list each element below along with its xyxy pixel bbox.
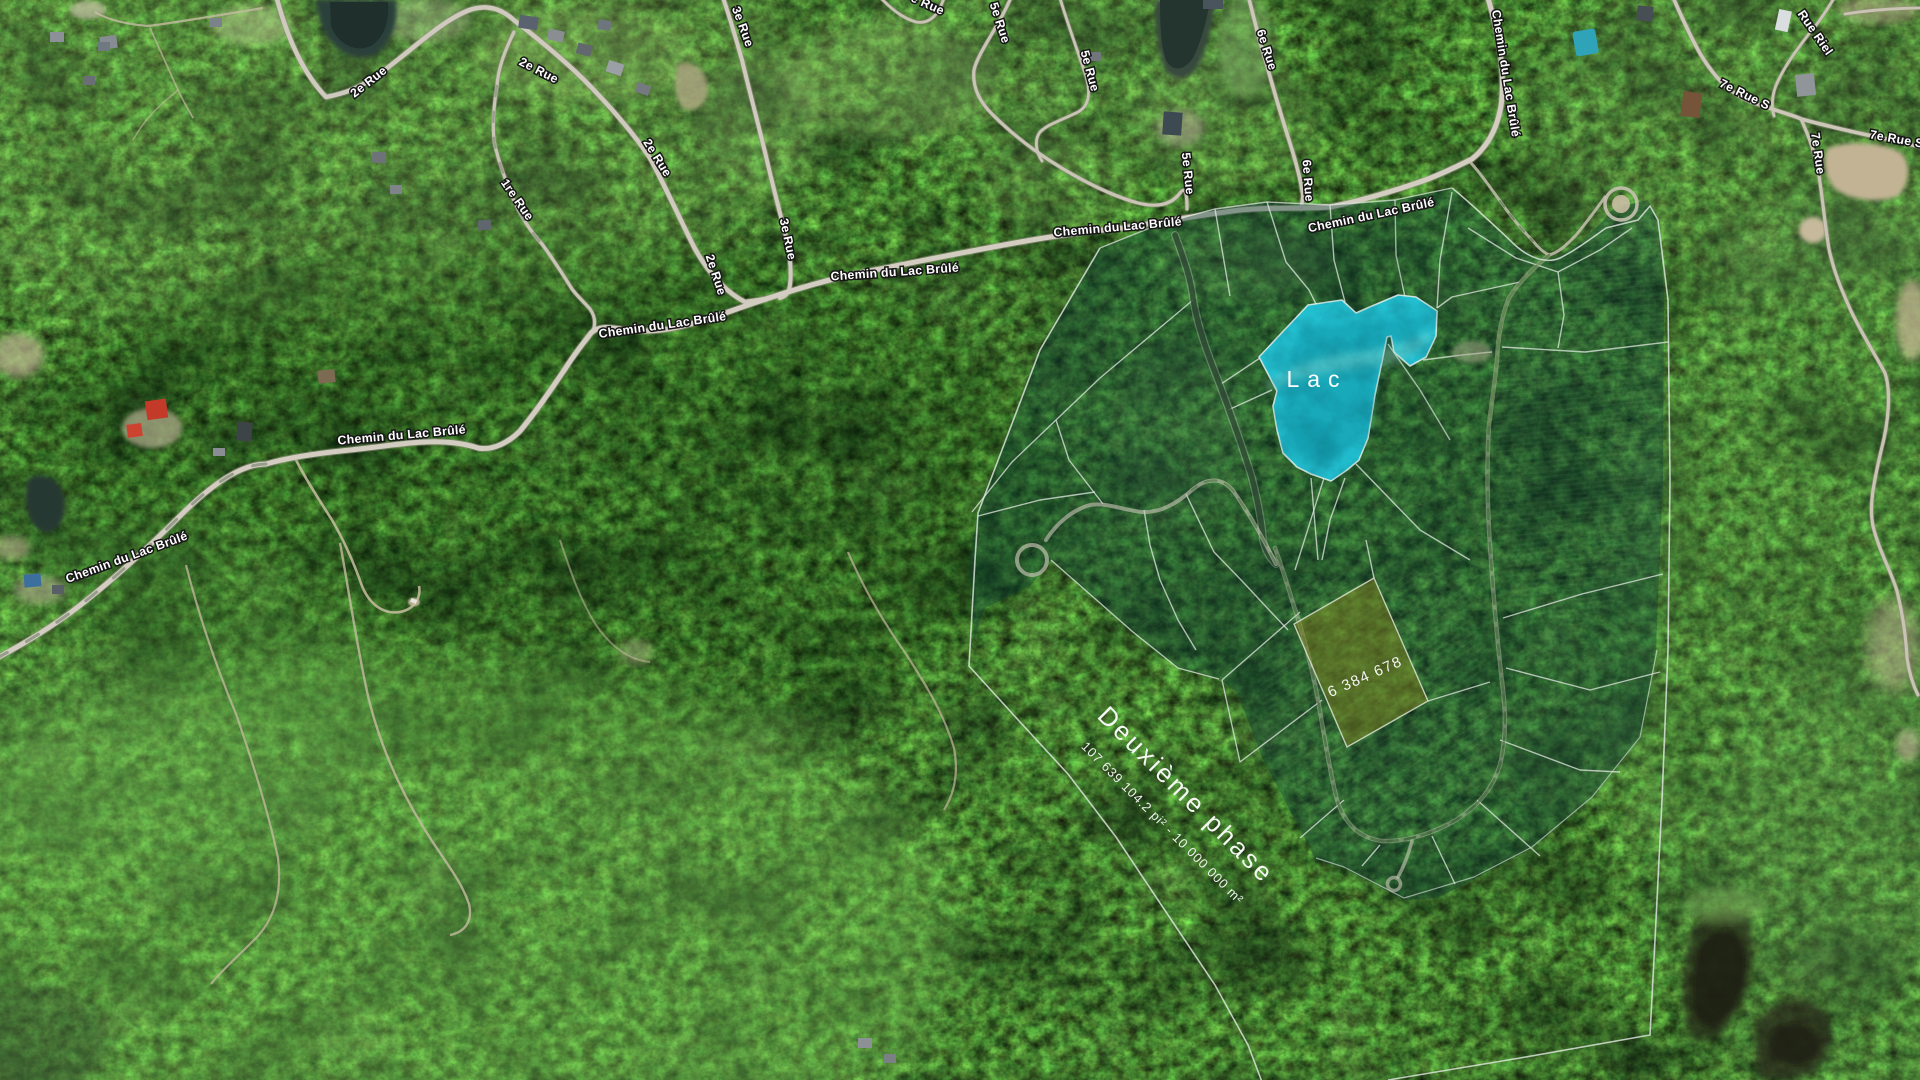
svg-text:Lac: Lac xyxy=(1286,366,1347,392)
svg-text:6e Rue: 6e Rue xyxy=(1300,159,1317,202)
